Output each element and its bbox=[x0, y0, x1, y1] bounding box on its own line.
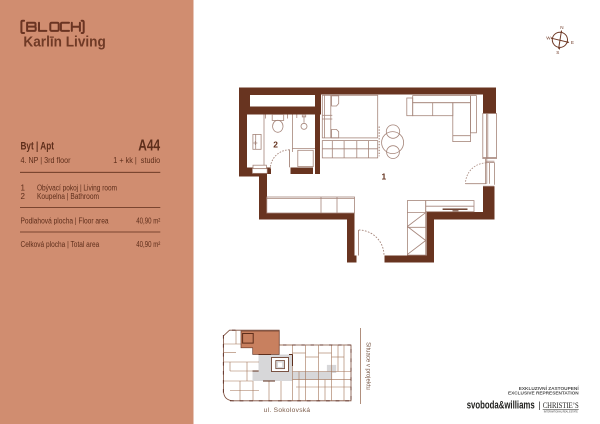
svg-text:1: 1 bbox=[382, 171, 387, 181]
svg-text:N: N bbox=[560, 25, 563, 30]
svg-text:E: E bbox=[571, 40, 574, 45]
svg-text:|: | bbox=[538, 400, 540, 411]
svg-text:W: W bbox=[546, 35, 551, 40]
svg-text:Byt | Apt: Byt | Apt bbox=[21, 141, 55, 153]
svg-text:ul. Sokolovská: ul. Sokolovská bbox=[264, 407, 311, 414]
svg-text:svoboda&williams: svoboda&williams bbox=[467, 400, 535, 412]
svg-text:Podlahová plocha | Floor area: Podlahová plocha | Floor area bbox=[21, 216, 110, 225]
svg-text:INTERNATIONAL REAL ESTATE: INTERNATIONAL REAL ESTATE bbox=[544, 410, 578, 414]
svg-text:Karlīn Living: Karlīn Living bbox=[23, 34, 105, 51]
svg-text:EXCLUSIVE REPRESENTATION: EXCLUSIVE REPRESENTATION bbox=[508, 391, 579, 397]
svg-text:A44: A44 bbox=[138, 137, 160, 154]
svg-text:Koupelna | Bathroom: Koupelna | Bathroom bbox=[37, 192, 99, 201]
svg-text:Celková plocha | Total area: Celková plocha | Total area bbox=[21, 240, 100, 249]
svg-text:1 + kk | studio: 1 + kk | studio bbox=[113, 156, 161, 165]
svg-text:Situace v projektu: Situace v projektu bbox=[365, 342, 371, 390]
svg-text:40,90 m²: 40,90 m² bbox=[136, 240, 160, 249]
svg-text:40,90 m²: 40,90 m² bbox=[136, 216, 160, 225]
svg-text:CHRISTIE’S: CHRISTIE’S bbox=[543, 400, 579, 410]
svg-text:4. NP | 3rd floor: 4. NP | 3rd floor bbox=[21, 156, 71, 165]
svg-text:2: 2 bbox=[21, 192, 26, 201]
svg-text:S: S bbox=[556, 50, 559, 55]
svg-text:2: 2 bbox=[273, 139, 278, 149]
